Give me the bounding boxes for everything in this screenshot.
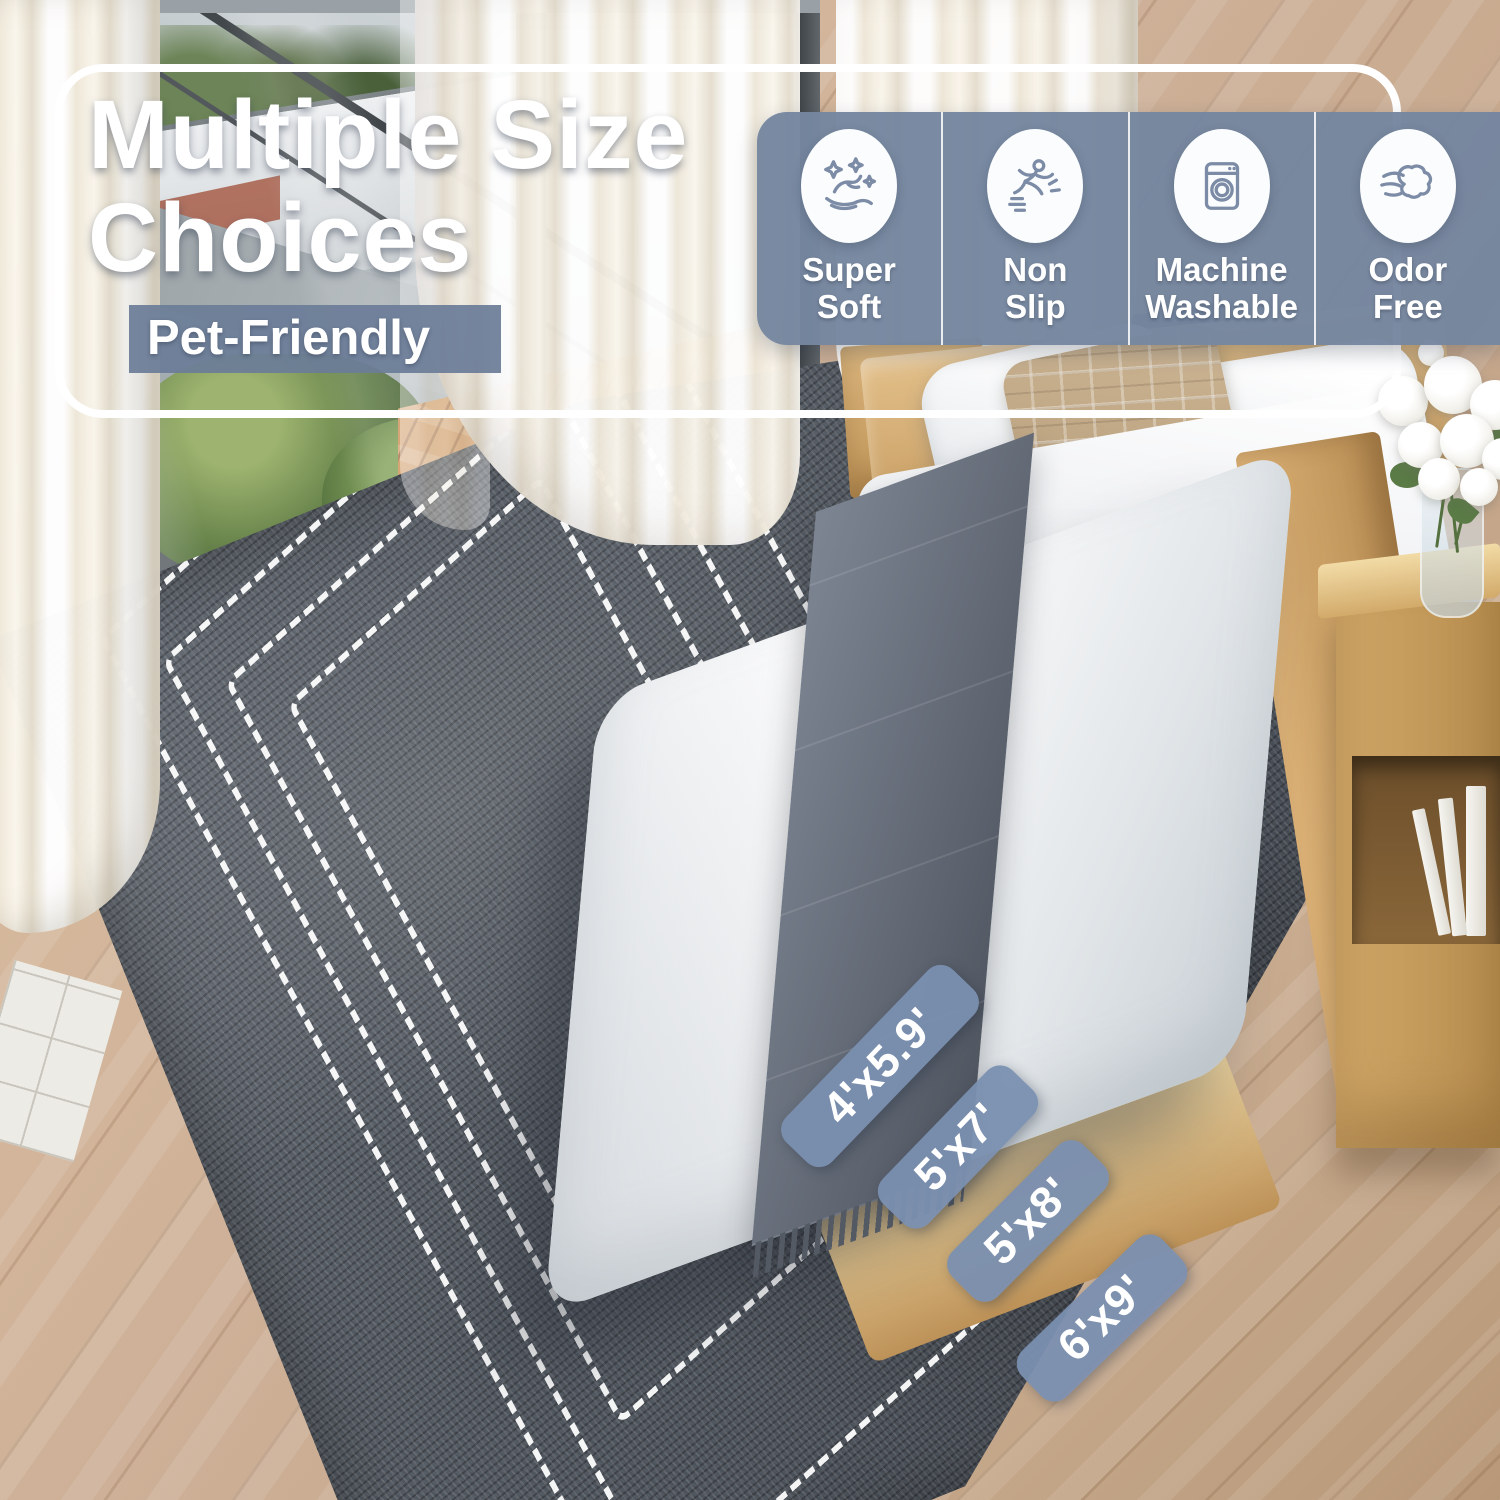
odor-free-icon [1360, 129, 1456, 243]
feature-label: Non Slip [1003, 252, 1067, 326]
nightstand-shelf [1352, 756, 1500, 944]
feature-non-slip: Non Slip [941, 112, 1127, 345]
product-image: Multiple Size Choices Pet-Friendly Super… [0, 0, 1500, 1500]
slip-person-icon [987, 129, 1083, 243]
title-line-1: Multiple Size [88, 84, 688, 187]
title-line-2: Choices [88, 187, 688, 290]
book [1466, 786, 1486, 936]
feature-label: Machine Washable [1145, 252, 1298, 326]
page-title: Multiple Size Choices [88, 84, 688, 290]
white-rose [1418, 458, 1460, 500]
feature-panel: Super Soft Non Slip [757, 112, 1500, 345]
pet-friendly-badge: Pet-Friendly [129, 305, 501, 373]
feature-label: Super Soft [802, 252, 896, 326]
feature-machine-washable: Machine Washable [1128, 112, 1314, 345]
white-rose [1460, 468, 1498, 506]
washing-machine-icon [1174, 129, 1270, 243]
feature-label: Odor Free [1368, 252, 1447, 326]
feature-super-soft: Super Soft [757, 112, 941, 345]
feature-odor-free: Odor Free [1314, 112, 1500, 345]
soft-hand-icon [801, 129, 897, 243]
